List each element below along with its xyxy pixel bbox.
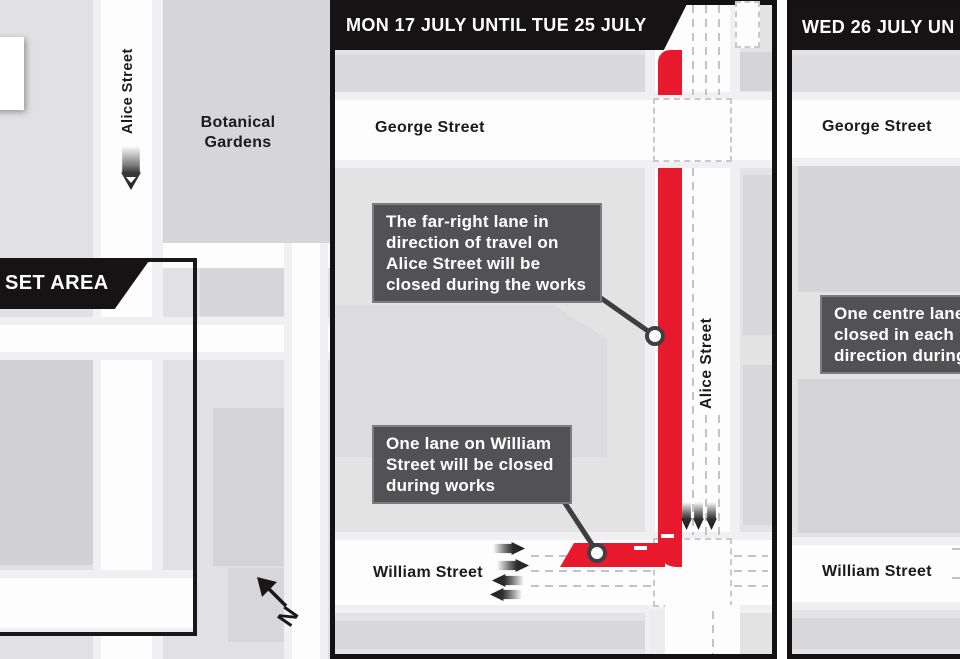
- panel-wed-header: WED 26 JULY UN: [792, 5, 960, 50]
- panel-gap: [777, 0, 787, 659]
- building-block: [200, 268, 284, 316]
- callout-alice-closure: The far-right lane in direction of trave…: [372, 203, 602, 303]
- william-street-label: William Street: [822, 563, 932, 581]
- building-block: [792, 618, 960, 649]
- closed-lane-william: [560, 543, 665, 567]
- callout-line: direction during: [834, 345, 960, 366]
- alice-street-road-south: [665, 605, 740, 654]
- george-alice-intersection: [653, 98, 732, 162]
- inset-area-outline: [0, 258, 197, 636]
- callout-line: closed during the works: [386, 274, 588, 295]
- alice-street-label: Alice Street: [698, 293, 716, 409]
- callout-line: Street will be closed: [386, 454, 558, 475]
- panel-wed-26-july: One centre lane closed in each direction…: [787, 0, 960, 659]
- lane-line: [718, 5, 720, 95]
- callout-line: during works: [386, 475, 558, 496]
- panel-mon-header-label: MON 17 JULY UNTIL TUE 25 JULY: [346, 15, 647, 35]
- george-street-label: George Street: [375, 119, 485, 137]
- lane-line: [705, 5, 707, 95]
- callout-centre-lane-closure: One centre lane closed in each direction…: [820, 295, 960, 374]
- callout-line: One centre lane: [834, 303, 960, 324]
- callout-william-closure: One lane on William Street will be close…: [372, 425, 572, 504]
- lane-line: [531, 585, 651, 587]
- building-block: [798, 379, 960, 533]
- building-block: [335, 55, 647, 92]
- building-block: [792, 55, 960, 93]
- callout-line: closed in each: [834, 324, 960, 345]
- lane-line: [718, 415, 720, 535]
- william-street-label: William Street: [373, 564, 483, 582]
- callout-line: direction of travel on: [386, 232, 588, 253]
- building-block: [798, 166, 960, 292]
- lane-line: [692, 168, 694, 535]
- closed-lane-alice: [658, 168, 682, 567]
- panel-mon-17-july: The far-right lane in direction of trave…: [330, 0, 777, 659]
- parking-bay: [735, 1, 760, 48]
- sidewalk: [650, 610, 665, 654]
- building-block: [743, 175, 772, 335]
- lane-line: [712, 611, 714, 654]
- lane-line: [705, 415, 707, 535]
- building-block: [213, 408, 290, 566]
- road-closure-infographic: Alice Street Botanical Gardens SET AREA …: [0, 0, 960, 659]
- lane-line-on-red: [634, 546, 647, 550]
- overview-map: Alice Street Botanical Gardens SET AREA …: [0, 0, 330, 659]
- callout-line: The far-right lane in: [386, 211, 588, 232]
- botanical-gardens-label: Botanical Gardens: [183, 113, 293, 153]
- north-arrow: N: [250, 570, 306, 632]
- alice-street-label-overview: Alice Street: [120, 42, 136, 134]
- map-card: [0, 37, 24, 110]
- building-block: [335, 621, 653, 649]
- george-street-label: George Street: [822, 118, 932, 136]
- lane-line: [531, 570, 651, 572]
- callout-line: One lane on William: [386, 433, 558, 454]
- panel-wed-header-label: WED 26 JULY UN: [802, 17, 955, 37]
- lane-line: [734, 585, 768, 587]
- lane-line: [952, 548, 960, 550]
- lane-line: [734, 570, 768, 572]
- callout-line: Alice Street will be: [386, 253, 588, 274]
- lane-line: [952, 577, 960, 579]
- building-block: [743, 365, 772, 525]
- panel-mon-header: MON 17 JULY UNTIL TUE 25 JULY: [330, 0, 689, 50]
- lane-line-on-red: [661, 534, 674, 538]
- north-label: N: [272, 602, 304, 632]
- closed-lane-alice-top: [658, 50, 682, 95]
- lane-line: [692, 5, 694, 95]
- lane-line: [734, 555, 768, 557]
- inset-area-banner-label: SET AREA: [5, 272, 109, 294]
- building-block: [739, 52, 772, 91]
